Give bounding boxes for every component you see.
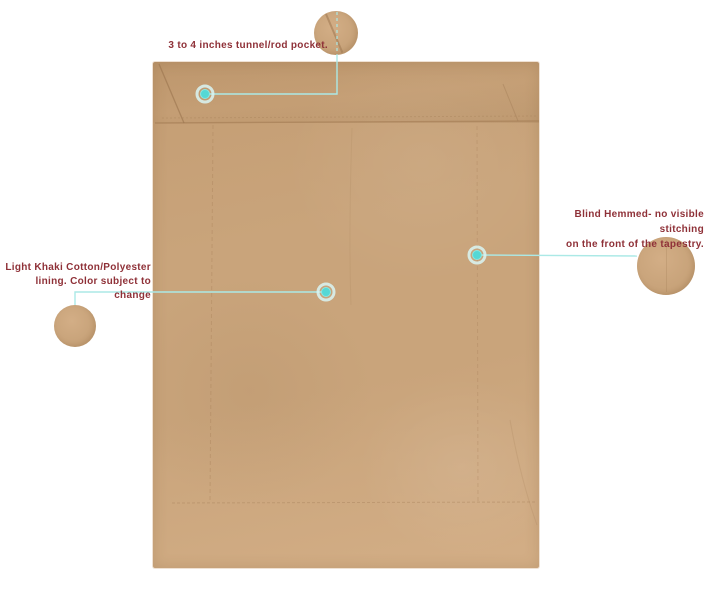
lining-label-line1: Light Khaki Cotton/Polyester (0, 261, 151, 275)
rod-pocket-label-text: 3 to 4 inches tunnel/rod pocket. (120, 39, 328, 53)
rod-pocket-flap (153, 62, 539, 123)
blind-hem-label-line2: on the front of the tapestry. (538, 237, 704, 252)
fabric-panel (153, 62, 539, 568)
blind-hem-label-line1: Blind Hemmed- no visible stitching (538, 207, 704, 237)
lining-label-line2: lining. Color subject to change (0, 275, 151, 303)
lining-label: Light Khaki Cotton/Polyester lining. Col… (0, 261, 151, 303)
rod-pocket-label: 3 to 4 inches tunnel/rod pocket. (120, 39, 328, 53)
detail-circle-lining (54, 305, 96, 347)
tapestry-back-annotation-image: 3 to 4 inches tunnel/rod pocket. Blind H… (0, 0, 706, 600)
blind-hem-label: Blind Hemmed- no visible stitching on th… (538, 207, 704, 252)
